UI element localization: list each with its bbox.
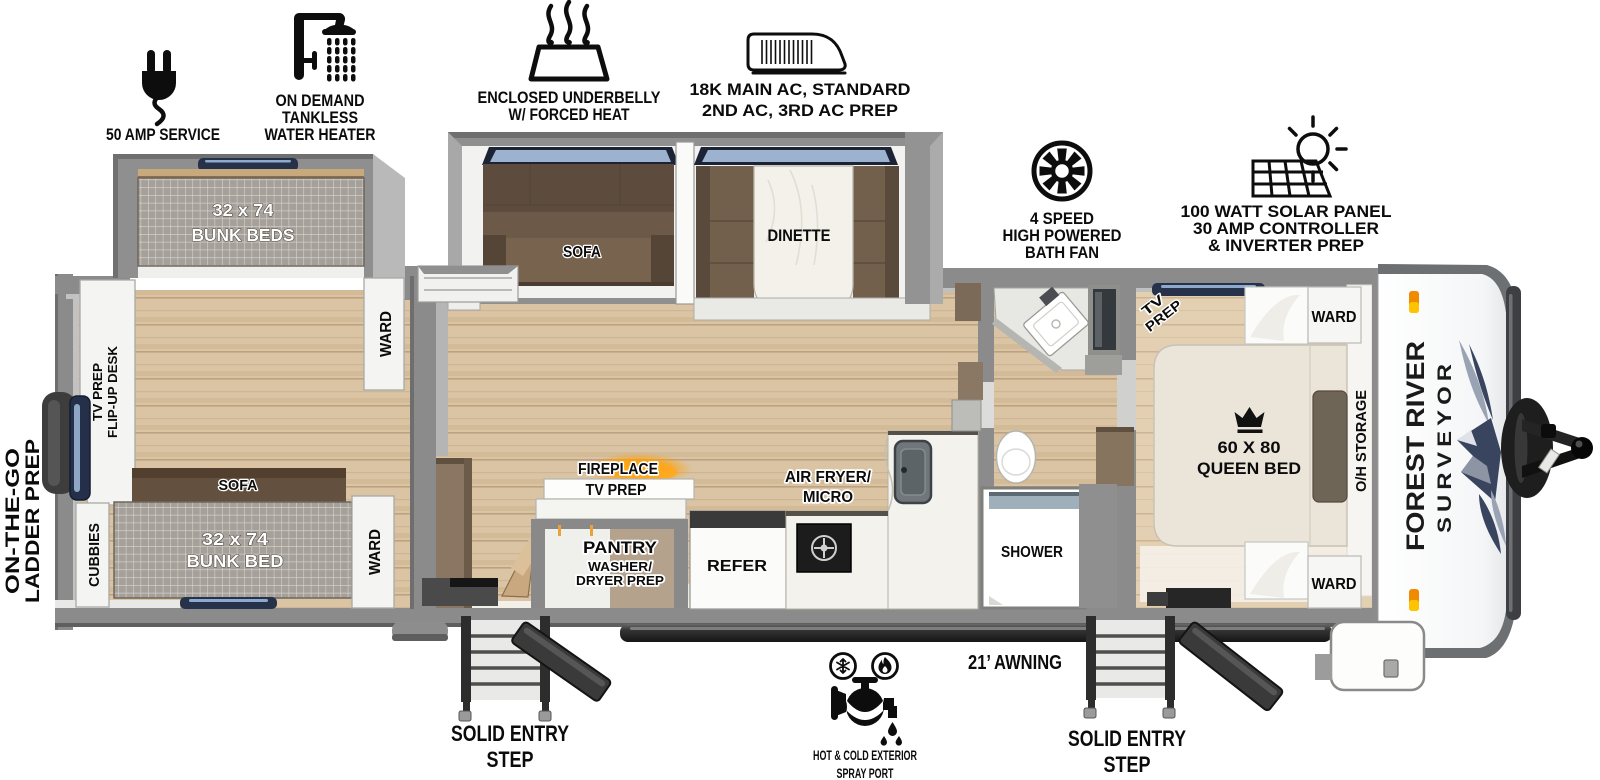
svg-text:ON-THE-GO: ON-THE-GO	[3, 448, 24, 594]
svg-text:DRYER PREP: DRYER PREP	[576, 573, 664, 588]
svg-text:BUNK BEDS: BUNK BEDS	[192, 225, 295, 245]
svg-text:21’ AWNING: 21’ AWNING	[968, 652, 1062, 674]
svg-text:32 x 74: 32 x 74	[202, 529, 268, 549]
svg-text:WASHER/: WASHER/	[588, 559, 652, 574]
svg-text:HOT & COLD EXTERIOR: HOT & COLD EXTERIOR	[813, 748, 917, 763]
svg-text:O/H STORAGE: O/H STORAGE	[1354, 390, 1370, 492]
svg-text:SURVEYOR: SURVEYOR	[1435, 359, 1456, 533]
svg-text:WARD: WARD	[1312, 309, 1357, 326]
svg-text:2ND AC, 3RD AC PREP: 2ND AC, 3RD AC PREP	[702, 101, 898, 120]
svg-text:TANKLESS: TANKLESS	[282, 109, 358, 127]
svg-text:SOLID ENTRY: SOLID ENTRY	[1068, 726, 1186, 751]
svg-text:WARD: WARD	[367, 529, 384, 575]
svg-text:SHOWER: SHOWER	[1001, 544, 1063, 561]
svg-text:SOFA: SOFA	[219, 477, 258, 494]
svg-text:DINETTE: DINETTE	[768, 227, 831, 245]
svg-text:QUEEN BED: QUEEN BED	[1197, 459, 1301, 478]
svg-text:MICRO: MICRO	[803, 489, 853, 506]
svg-text:60 X 80: 60 X 80	[1218, 438, 1281, 457]
svg-text:50 AMP SERVICE: 50 AMP SERVICE	[106, 125, 220, 144]
svg-text:TV PREP: TV PREP	[91, 363, 105, 421]
svg-text:CUBBIES: CUBBIES	[86, 523, 103, 587]
svg-text:WARD: WARD	[1312, 576, 1357, 593]
svg-text:ON DEMAND: ON DEMAND	[276, 92, 365, 110]
svg-text:SOFA: SOFA	[563, 244, 601, 261]
svg-text:STEP: STEP	[1104, 752, 1151, 777]
svg-text:& INVERTER PREP: & INVERTER PREP	[1208, 236, 1364, 255]
svg-text:FOREST RIVER: FOREST RIVER	[1402, 341, 1430, 551]
svg-text:STEP: STEP	[487, 747, 534, 772]
svg-text:BATH FAN: BATH FAN	[1025, 243, 1099, 262]
svg-text:32 x 74: 32 x 74	[213, 200, 274, 220]
svg-text:SPRAY PORT: SPRAY PORT	[837, 766, 894, 780]
svg-text:BUNK BED: BUNK BED	[187, 551, 284, 571]
svg-text:W/ FORCED HEAT: W/ FORCED HEAT	[509, 105, 630, 124]
svg-text:FLIP-UP DESK: FLIP-UP DESK	[106, 346, 120, 438]
svg-text:PANTRY: PANTRY	[583, 538, 658, 557]
svg-text:18K MAIN AC, STANDARD: 18K MAIN AC, STANDARD	[690, 80, 911, 99]
svg-text:LADDER PREP: LADDER PREP	[23, 439, 44, 603]
svg-text:WARD: WARD	[378, 311, 395, 357]
svg-text:WATER HEATER: WATER HEATER	[265, 126, 376, 144]
svg-text:AIR FRYER/: AIR FRYER/	[785, 469, 872, 486]
svg-text:REFER: REFER	[707, 558, 767, 575]
svg-text:TV PREP: TV PREP	[586, 482, 647, 499]
svg-text:SOLID ENTRY: SOLID ENTRY	[451, 721, 569, 746]
svg-text:FIREPLACE: FIREPLACE	[578, 461, 658, 478]
